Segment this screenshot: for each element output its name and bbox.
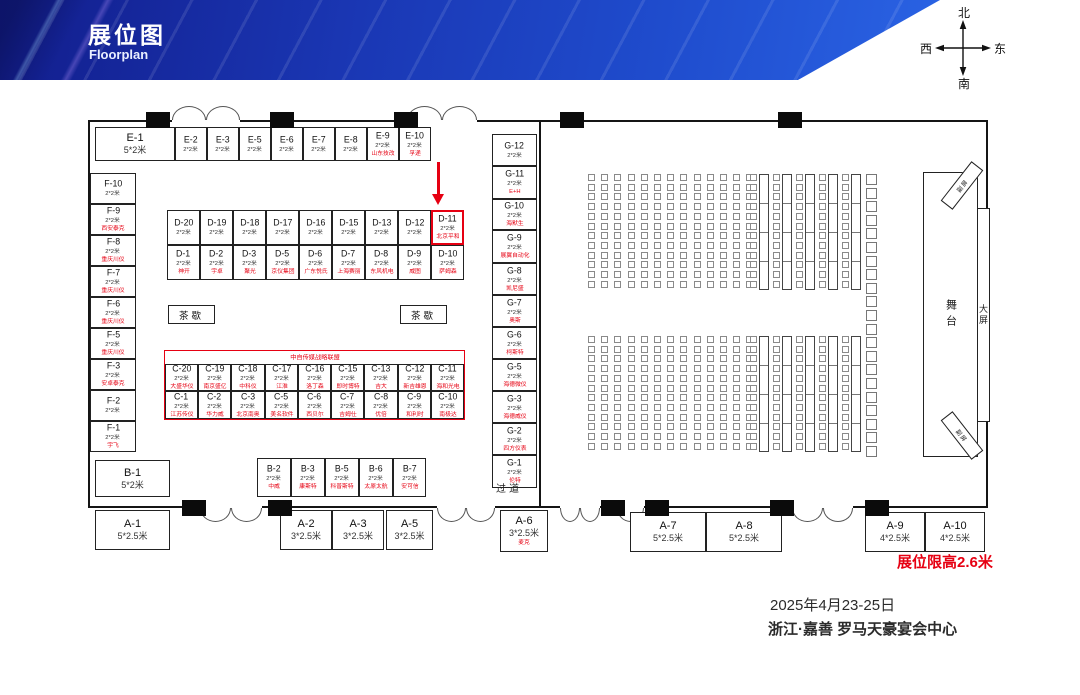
door-swing-arc xyxy=(442,106,477,120)
audience-chair xyxy=(628,174,635,181)
audience-chair xyxy=(614,193,621,200)
audience-chair xyxy=(819,242,826,249)
audience-chair xyxy=(842,336,849,343)
audience-chair xyxy=(667,174,674,181)
audience-chair xyxy=(667,271,674,278)
audience-chair xyxy=(733,414,740,421)
booth-company: 海德威仪 xyxy=(503,414,526,419)
booth-id: E-2 xyxy=(184,135,198,145)
booth-company: 广东悦氏 xyxy=(304,270,327,275)
audience-chair xyxy=(842,223,849,230)
booth-id: G-2 xyxy=(507,426,522,436)
booth-company: 四方仪表 xyxy=(503,446,526,451)
booth-id: C-11 xyxy=(438,365,456,375)
booth-size: 5*2米 xyxy=(121,480,144,491)
booth-id: A-8 xyxy=(735,520,752,533)
header-banner: 展位图 Floorplan xyxy=(0,0,940,80)
audience-chair xyxy=(819,346,826,353)
audience-chair xyxy=(601,261,608,268)
audience-chair xyxy=(667,423,674,430)
booth-size: 2*2米 xyxy=(241,377,256,382)
booth-C-8: C-82*2米优倍 xyxy=(364,391,398,419)
audience-chair xyxy=(694,281,701,288)
booth-D-9: D-92*2米威图 xyxy=(398,245,431,280)
audience-chair xyxy=(773,414,780,421)
audience-chair xyxy=(601,394,608,401)
audience-chair xyxy=(773,174,780,181)
booth-size: 2*2米 xyxy=(209,262,224,267)
audience-chair xyxy=(707,193,714,200)
booth-size: 3*2.5米 xyxy=(394,531,424,542)
audience-chair xyxy=(842,375,849,382)
audience-chair xyxy=(819,223,826,230)
booth-id: E-5 xyxy=(248,135,262,145)
audience-chair xyxy=(667,336,674,343)
audience-chair xyxy=(667,346,674,353)
audience-chair xyxy=(601,375,608,382)
audience-chair xyxy=(842,385,849,392)
audience-chair xyxy=(680,281,687,288)
booth-company: 宇飞 xyxy=(107,444,119,449)
audience-chair xyxy=(641,193,648,200)
booth-id: D-7 xyxy=(341,250,355,260)
booth-size: 5*2.5米 xyxy=(653,533,683,544)
booth-id: D-17 xyxy=(273,219,292,229)
audience-chair xyxy=(720,336,727,343)
booth-size: 2*2米 xyxy=(507,342,522,347)
audience-chair xyxy=(654,375,661,382)
booth-C-2: C-22*2米华力威 xyxy=(198,391,231,419)
booth-E-1: E-15*2米 xyxy=(95,127,175,161)
audience-chair xyxy=(667,355,674,362)
audience-chair xyxy=(614,423,621,430)
audience-chair xyxy=(628,336,635,343)
audience-chair xyxy=(773,385,780,392)
audience-chair xyxy=(720,443,727,450)
audience-chair xyxy=(641,271,648,278)
booth-E-10: E-102*2米孚递 xyxy=(399,127,431,161)
booth-company: 西安泰克 xyxy=(101,227,124,232)
audience-chair xyxy=(733,252,740,259)
audience-chair xyxy=(667,433,674,440)
booth-C-19: C-192*2米南京盛亿 xyxy=(198,364,231,391)
audience-chair xyxy=(667,375,674,382)
booth-id: C-9 xyxy=(407,392,421,402)
booth-company: 聚光 xyxy=(244,270,256,275)
booth-B-5: B-52*2米科普斯特 xyxy=(325,458,359,497)
audience-chair xyxy=(773,346,780,353)
audience-chair xyxy=(667,261,674,268)
audience-chair xyxy=(750,355,757,362)
audience-chair xyxy=(796,223,803,230)
audience-chair xyxy=(842,252,849,259)
audience-chair xyxy=(588,242,595,249)
booth-company: 北京平和 xyxy=(436,235,459,240)
booth-E-8: E-82*2米 xyxy=(335,127,367,161)
booth-id: D-13 xyxy=(372,219,391,229)
vip-chair xyxy=(866,378,877,389)
booth-G-2: G-22*2米四方仪表 xyxy=(492,423,537,455)
audience-chair xyxy=(614,355,621,362)
audience-chair xyxy=(842,232,849,239)
booth-C-1: C-12*2米江苏传仪 xyxy=(165,391,198,419)
booth-G-9: G-92*2米展翼自动化 xyxy=(492,230,537,263)
booth-size: 2*2米 xyxy=(507,182,522,187)
vip-chair xyxy=(866,446,877,457)
audience-table xyxy=(828,336,838,452)
audience-chair xyxy=(654,394,661,401)
audience-chair xyxy=(601,336,608,343)
audience-chair xyxy=(733,375,740,382)
booth-id: C-20 xyxy=(172,365,191,375)
booth-id: A-9 xyxy=(886,520,903,533)
audience-chair xyxy=(667,242,674,249)
booth-id: D-6 xyxy=(308,250,322,260)
booth-F-6: F-62*2米重庆川仪 xyxy=(90,297,136,328)
wall-pillar xyxy=(560,112,584,128)
audience-chair xyxy=(614,346,621,353)
audience-chair xyxy=(720,223,727,230)
audience-chair xyxy=(601,184,608,191)
booth-company: 重庆川仪 xyxy=(101,320,124,325)
audience-table xyxy=(851,174,861,290)
booth-id: D-18 xyxy=(240,219,259,229)
audience-chair xyxy=(796,261,803,268)
audience-chair xyxy=(641,385,648,392)
audience-chair xyxy=(842,203,849,210)
booth-id: D-16 xyxy=(306,219,325,229)
booth-id: G-7 xyxy=(507,298,522,308)
audience-chair xyxy=(819,394,826,401)
booth-D-18: D-182*2米 xyxy=(233,210,266,245)
audience-chair xyxy=(667,213,674,220)
audience-table xyxy=(759,336,769,452)
booth-E-2: E-22*2米 xyxy=(175,127,207,161)
booth-size: 2*2米 xyxy=(308,231,323,236)
audience-chair xyxy=(614,184,621,191)
audience-chair xyxy=(614,336,621,343)
booth-F-9: F-92*2米西安泰克 xyxy=(90,204,136,235)
audience-chair xyxy=(601,242,608,249)
booth-size: 5*2米 xyxy=(124,145,147,156)
audience-chair xyxy=(654,423,661,430)
audience-chair xyxy=(614,174,621,181)
audience-chair xyxy=(628,423,635,430)
booth-id: D-3 xyxy=(242,250,256,260)
audience-chair xyxy=(654,365,661,372)
audience-chair xyxy=(720,365,727,372)
audience-chair xyxy=(796,232,803,239)
booth-G-10: G-102*2米海默生 xyxy=(492,199,537,230)
audience-chair xyxy=(694,223,701,230)
audience-chair xyxy=(641,184,648,191)
audience-chair xyxy=(641,242,648,249)
main-screen: 大屏 xyxy=(977,208,990,422)
booth-company: 和利时 xyxy=(406,412,423,417)
audience-chair xyxy=(614,232,621,239)
booth-id: G-9 xyxy=(507,234,522,244)
audience-chair xyxy=(842,394,849,401)
booth-company: 南极达 xyxy=(439,412,456,417)
booth-G-5: G-52*2米海德微仪 xyxy=(492,359,537,391)
audience-chair xyxy=(654,355,661,362)
audience-chair xyxy=(750,394,757,401)
audience-chair xyxy=(750,443,757,450)
vip-chair xyxy=(866,296,877,307)
audience-chair xyxy=(694,443,701,450)
booth-size: 2*2米 xyxy=(507,374,522,379)
audience-chair xyxy=(819,375,826,382)
audience-chair xyxy=(707,414,714,421)
booth-id: C-3 xyxy=(241,392,255,402)
booth-size: 2*2米 xyxy=(312,147,327,152)
audience-chair xyxy=(819,271,826,278)
audience-chair xyxy=(601,423,608,430)
audience-chair xyxy=(601,443,608,450)
audience-chair xyxy=(720,213,727,220)
booth-id: B-7 xyxy=(403,465,417,475)
booth-company: 科普斯特 xyxy=(330,485,353,490)
audience-chair xyxy=(680,385,687,392)
audience-chair xyxy=(601,223,608,230)
audience-chair xyxy=(654,443,661,450)
audience-chair xyxy=(819,213,826,220)
audience-chair xyxy=(601,414,608,421)
booth-company: 大盛华仪 xyxy=(170,385,193,390)
wall-pillar xyxy=(182,500,206,516)
audience-chair xyxy=(680,242,687,249)
audience-chair xyxy=(707,271,714,278)
booth-id: D-9 xyxy=(407,250,421,260)
audience-chair xyxy=(819,232,826,239)
booth-C-7: C-72*2米吉姆仕 xyxy=(331,391,364,419)
audience-chair xyxy=(720,203,727,210)
audience-chair xyxy=(628,394,635,401)
audience-chair xyxy=(680,423,687,430)
booth-B-1: B-15*2米 xyxy=(95,460,170,497)
booth-size: 2*2米 xyxy=(341,262,356,267)
booth-G-8: G-82*2米凯尼盛 xyxy=(492,263,537,295)
audience-chair xyxy=(720,346,727,353)
booth-size: 2*2米 xyxy=(274,377,289,382)
audience-chair xyxy=(680,203,687,210)
audience-chair xyxy=(601,281,608,288)
wall-pillar xyxy=(645,500,669,516)
audience-chair xyxy=(773,404,780,411)
audience-chair xyxy=(720,394,727,401)
audience-chair xyxy=(796,336,803,343)
audience-chair xyxy=(694,261,701,268)
booth-size: 2*2米 xyxy=(408,143,423,148)
audience-chair xyxy=(720,193,727,200)
audience-chair xyxy=(588,271,595,278)
audience-chair xyxy=(667,394,674,401)
booth-id: B-1 xyxy=(124,467,141,480)
booth-size: 2*2米 xyxy=(507,153,522,158)
audience-chair xyxy=(720,414,727,421)
booth-size: 2*2米 xyxy=(106,192,121,197)
audience-chair xyxy=(750,375,757,382)
audience-chair xyxy=(733,223,740,230)
vip-chair xyxy=(866,188,877,199)
audience-chair xyxy=(628,346,635,353)
c-block-banner: 中自传媒战略联盟 xyxy=(164,350,465,363)
audience-chair xyxy=(654,261,661,268)
audience-chair xyxy=(694,336,701,343)
audience-chair xyxy=(819,443,826,450)
audience-chair xyxy=(694,271,701,278)
booth-id: C-13 xyxy=(371,365,390,375)
audience-chair xyxy=(694,232,701,239)
booth-size: 2*2米 xyxy=(275,262,290,267)
booth-company: 南京盛亿 xyxy=(203,385,226,390)
audience-chair xyxy=(588,213,595,220)
booth-size: 2*2米 xyxy=(335,477,350,482)
audience-chair xyxy=(819,193,826,200)
wall-pillar xyxy=(394,112,418,128)
door-swing-arc xyxy=(823,508,854,522)
audience-chair xyxy=(842,355,849,362)
audience-chair xyxy=(720,252,727,259)
audience-chair xyxy=(641,261,648,268)
audience-chair xyxy=(819,404,826,411)
booth-E-7: E-72*2米 xyxy=(303,127,335,161)
audience-chair xyxy=(707,404,714,411)
audience-chair xyxy=(628,223,635,230)
booth-G-6: G-62*2米柯斯特 xyxy=(492,327,537,359)
audience-chair xyxy=(773,242,780,249)
audience-chair xyxy=(733,336,740,343)
booth-id: E-7 xyxy=(312,135,326,145)
audience-chair xyxy=(628,184,635,191)
audience-chair xyxy=(680,174,687,181)
audience-chair xyxy=(750,281,757,288)
audience-chair xyxy=(588,423,595,430)
audience-chair xyxy=(750,223,757,230)
audience-chair xyxy=(720,423,727,430)
booth-id: B-6 xyxy=(369,465,383,475)
audience-chair xyxy=(601,385,608,392)
audience-chair xyxy=(641,394,648,401)
booth-size: 2*2米 xyxy=(507,406,522,411)
audience-chair xyxy=(680,213,687,220)
highlight-arrow-head xyxy=(432,194,444,205)
audience-chair xyxy=(614,414,621,421)
booth-company: 安卓泰克 xyxy=(101,382,124,387)
audience-chair xyxy=(819,385,826,392)
audience-chair xyxy=(667,193,674,200)
audience-chair xyxy=(667,365,674,372)
audience-chair xyxy=(733,271,740,278)
booth-size: 2*2米 xyxy=(307,377,322,382)
page-subtitle: Floorplan xyxy=(89,47,148,62)
audience-chair xyxy=(750,242,757,249)
audience-chair xyxy=(819,355,826,362)
booth-company: 神开 xyxy=(178,270,190,275)
booth-E-3: E-32*2米 xyxy=(207,127,239,161)
booth-D-5: D-52*2米京仪集团 xyxy=(266,245,299,280)
audience-chair xyxy=(720,433,727,440)
booth-size: 2*2米 xyxy=(402,477,417,482)
height-limit-note: 展位限高2.6米 xyxy=(897,551,993,572)
audience-chair xyxy=(614,203,621,210)
booth-D-10: D-102*2米萨姆森 xyxy=(431,245,464,280)
audience-chair xyxy=(750,433,757,440)
vip-chair xyxy=(866,419,877,430)
booth-size: 2*2米 xyxy=(207,377,222,382)
audience-chair xyxy=(694,184,701,191)
booth-size: 2*2米 xyxy=(407,262,422,267)
audience-chair xyxy=(707,336,714,343)
booth-id: C-12 xyxy=(405,365,424,375)
audience-chair xyxy=(628,213,635,220)
booth-company: 中威 xyxy=(268,485,280,490)
audience-chair xyxy=(750,261,757,268)
audience-chair xyxy=(720,375,727,382)
booth-id: E-10 xyxy=(406,131,425,141)
audience-chair xyxy=(694,414,701,421)
booth-company: 上海赛丽 xyxy=(337,270,360,275)
audience-chair xyxy=(750,174,757,181)
audience-chair xyxy=(694,365,701,372)
door-swing-arc xyxy=(437,508,466,522)
audience-chair xyxy=(680,184,687,191)
vip-chair xyxy=(866,283,877,294)
booth-size: 2*2米 xyxy=(507,471,522,476)
booth-E-6: E-62*2米 xyxy=(271,127,303,161)
booth-id: D-1 xyxy=(176,250,190,260)
audience-chair xyxy=(680,261,687,268)
booth-company: 展翼自动化 xyxy=(500,254,529,259)
compass-north-label: 北 xyxy=(958,6,970,20)
audience-chair xyxy=(628,355,635,362)
vip-chair xyxy=(866,242,877,253)
booth-D-2: D-22*2米宇卓 xyxy=(200,245,233,280)
audience-chair xyxy=(733,355,740,362)
audience-chair xyxy=(628,242,635,249)
audience-chair xyxy=(796,385,803,392)
wall-pillar xyxy=(268,500,292,516)
booth-size: 2*2米 xyxy=(374,404,389,409)
booth-id: D-12 xyxy=(405,219,424,229)
audience-chair xyxy=(842,443,849,450)
booth-id: C-7 xyxy=(340,392,354,402)
audience-chair xyxy=(588,203,595,210)
booth-id: A-7 xyxy=(659,520,676,533)
audience-chair xyxy=(654,193,661,200)
compass-south-label: 南 xyxy=(958,76,970,90)
audience-chair xyxy=(750,193,757,200)
vip-chair xyxy=(866,337,877,348)
booth-C-16: C-162*2米洛丁森 xyxy=(298,364,331,391)
booth-company: 威图 xyxy=(409,270,421,275)
audience-chair xyxy=(588,193,595,200)
audience-chair xyxy=(588,281,595,288)
audience-chair xyxy=(707,385,714,392)
booth-size: 2*2米 xyxy=(106,436,121,441)
audience-chair xyxy=(796,365,803,372)
audience-chair xyxy=(641,281,648,288)
audience-chair xyxy=(733,443,740,450)
audience-chair xyxy=(628,385,635,392)
booth-B-2: B-22*2米中威 xyxy=(257,458,291,497)
booth-company: 吉大 xyxy=(375,385,387,390)
audience-chair xyxy=(733,184,740,191)
booth-id: D-5 xyxy=(275,250,289,260)
booth-G-3: G-32*2米海德威仪 xyxy=(492,391,537,423)
audience-chair xyxy=(842,404,849,411)
booth-C-9: C-92*2米和利时 xyxy=(398,391,431,419)
